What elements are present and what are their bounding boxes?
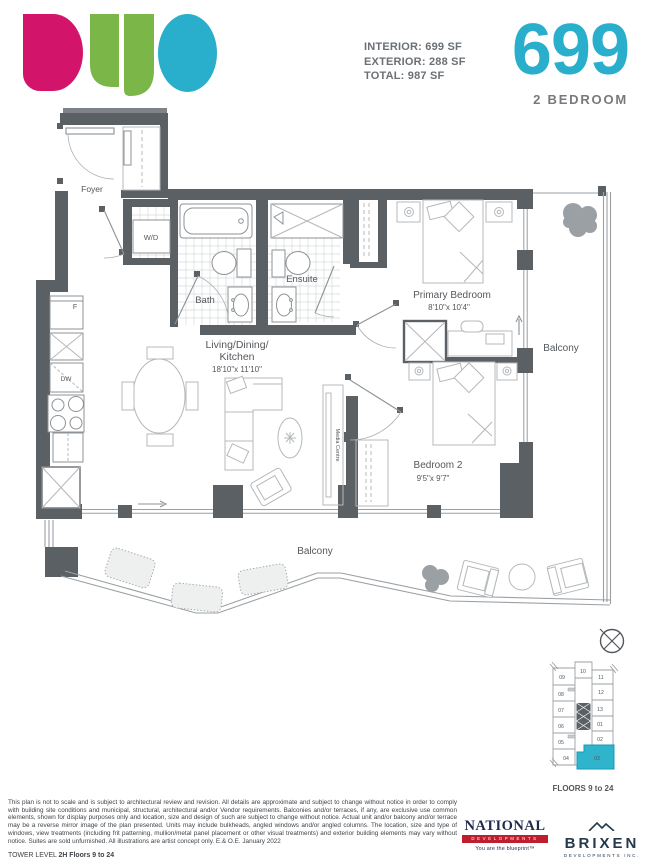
dining-chair (186, 382, 198, 410)
keyplan-unit: 08 (558, 692, 564, 698)
keyplan-unit: 05 (558, 740, 564, 746)
disclaimer-text: This plan is not to scale and is subject… (8, 799, 457, 845)
balcony-chair (547, 558, 589, 596)
keyplan-unit: 11 (598, 675, 603, 681)
foyer-label: Foyer (81, 184, 103, 194)
bath-fixtures (180, 204, 252, 322)
entry-door (66, 128, 114, 134)
keyplan-unit: 04 (563, 756, 569, 762)
window-arrow-icon (516, 316, 522, 335)
tower-level-value: 2H Floors 9 to 24 (59, 852, 115, 859)
ensuite-door (315, 266, 334, 313)
primary-bedroom-door (357, 304, 396, 325)
exterior-area: EXTERIOR: 288 SF (364, 55, 466, 70)
tower-level-prefix: TOWER LEVEL (8, 852, 59, 859)
elevator-icons (577, 703, 591, 730)
national-developments-logo: NATIONAL DEVELOPMENTS You are the bluepr… (462, 819, 548, 852)
ensuite-toilet (286, 252, 310, 275)
hedge (103, 547, 156, 590)
fridge-label: F (73, 304, 77, 311)
keyplan-door (568, 688, 575, 691)
duo-logo-o (158, 14, 217, 92)
ensuite-label: Ensuite (286, 274, 318, 285)
keyplan-unit: 09 (559, 675, 565, 681)
bath-toilet-tank (237, 249, 251, 277)
brixen-logo: BRIXEN DEVELOPMENTS INC. (552, 818, 652, 858)
national-logo-division: DEVELOPMENTS (462, 835, 548, 843)
national-logo-name: NATIONAL (462, 819, 548, 834)
bath-label: Bath (195, 295, 215, 306)
keyplan-unit: 06 (558, 724, 564, 730)
duo-logo-u-left (90, 14, 119, 87)
linen-closet (364, 203, 369, 258)
desk-chair (461, 321, 483, 332)
unit-number: 699 (512, 8, 629, 92)
wd-door (104, 210, 124, 254)
ensuite-toilet-tank (272, 250, 285, 277)
mountain-icon (587, 821, 617, 831)
bath-toilet (212, 252, 236, 275)
keyplan-unit: 13 (597, 707, 603, 713)
keyplan-unit: 10 (580, 669, 586, 675)
keyplan-unit: 02 (597, 737, 603, 743)
compass-icon (600, 629, 624, 653)
brixen-logo-division: DEVELOPMENTS INC. (552, 853, 652, 858)
balcony-plant (422, 565, 449, 592)
interior-area: INTERIOR: 699 SF (364, 40, 466, 55)
entry-arrow-icon (138, 501, 166, 507)
living-dims: 18'10"x 11'10" (212, 365, 262, 374)
dining-table (133, 359, 185, 433)
keyplan-unit: 12 (598, 690, 604, 696)
walls (36, 113, 606, 577)
keyplan-unit-highlighted: 03 (594, 756, 600, 762)
bedroom2-dims: 9'5"x 9'7" (417, 474, 450, 483)
bedroom2-label: Bedroom 2 (414, 460, 463, 471)
dining-chair (147, 347, 173, 359)
balcony-chair (457, 560, 499, 598)
nightstand (497, 363, 517, 380)
total-area: TOTAL: 987 SF (364, 69, 466, 84)
duo-logo (23, 14, 219, 118)
primary-bedroom-furniture (397, 200, 522, 362)
nightstand (409, 363, 430, 380)
nightstand (397, 202, 420, 222)
keyplan-unit: 07 (558, 708, 564, 714)
key-plan: 09 10 11 08 12 07 13 06 01 05 02 04 03 F… (545, 652, 645, 797)
balcony-tree (563, 203, 597, 237)
tub-drain (239, 219, 244, 224)
keyplan-door (568, 735, 575, 738)
dishwasher-label: DW (61, 376, 73, 383)
primary-bedroom-dims: 8'10"x 10'4" (428, 303, 470, 312)
living-label-2: Kitchen (219, 351, 254, 363)
living-label-1: Living/Dining/ (205, 339, 268, 351)
balcony-right-label: Balcony (543, 343, 579, 354)
media-centre-label: Media Centre (334, 428, 340, 461)
kitchen-counter (53, 433, 83, 462)
hedge (171, 582, 223, 612)
area-stats: INTERIOR: 699 SF EXTERIOR: 288 SF TOTAL:… (364, 40, 466, 84)
armchair (250, 467, 292, 507)
primary-bedroom-label: Primary Bedroom (413, 290, 491, 301)
tower-level-line: TOWER LEVEL 2H Floors 9 to 24 (8, 852, 114, 859)
bedroom2-furniture (356, 362, 517, 506)
dining-chair (122, 382, 134, 410)
dining-chair (147, 434, 173, 446)
duo-logo-u-right (124, 14, 154, 96)
unit-type: 2 BEDROOM (533, 92, 628, 107)
balcony-bottom-label: Balcony (297, 546, 333, 557)
national-logo-tagline: You are the blueprint™ (462, 846, 548, 852)
bedroom2-closet (356, 440, 388, 506)
plant-icon (284, 432, 296, 444)
floorplan-sheet: INTERIOR: 699 SF EXTERIOR: 288 SF TOTAL:… (0, 0, 653, 868)
duo-logo-d (23, 14, 83, 91)
floor-plan: Foyer W/D Bath Ensuite Living/Dining/ Ki… (28, 108, 642, 660)
keyplan-floors-label: FLOORS 9 to 24 (553, 784, 614, 793)
foyer-closet (123, 127, 160, 190)
wd-label: W/D (144, 233, 159, 242)
brixen-logo-name: BRIXEN (552, 836, 652, 852)
balcony-table (509, 564, 535, 590)
nightstand (486, 202, 512, 222)
keyplan-unit: 01 (597, 722, 603, 728)
